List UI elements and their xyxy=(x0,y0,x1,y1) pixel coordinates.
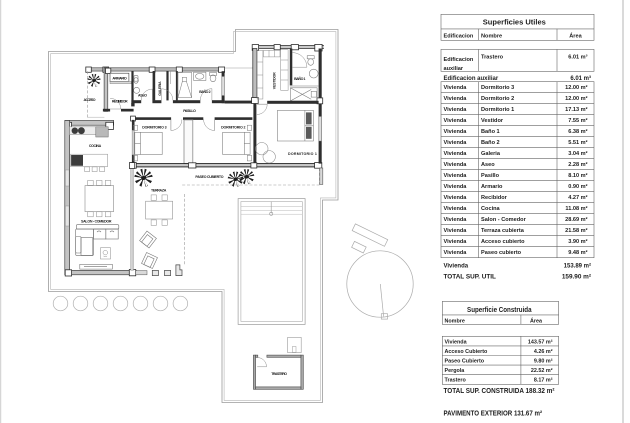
svg-text:12.00 m²: 12.00 m² xyxy=(565,84,588,91)
svg-text:Armario: Armario xyxy=(481,184,503,190)
svg-text:DORMITORIO 2: DORMITORIO 2 xyxy=(221,125,246,129)
svg-text:Vivienda: Vivienda xyxy=(444,263,469,269)
svg-text:3.04 m²: 3.04 m² xyxy=(568,150,587,157)
svg-text:6.38 m²: 6.38 m² xyxy=(568,128,587,135)
svg-text:5.51 m²: 5.51 m² xyxy=(568,139,587,146)
svg-text:VESTIDOR: VESTIDOR xyxy=(272,72,276,89)
svg-text:Vivienda: Vivienda xyxy=(444,118,468,124)
svg-text:auxiliar: auxiliar xyxy=(444,66,464,72)
svg-text:Vivienda: Vivienda xyxy=(444,217,468,223)
svg-text:Dormitorio 2: Dormitorio 2 xyxy=(481,96,514,102)
svg-text:143.57 m²: 143.57 m² xyxy=(528,339,553,345)
svg-text:Vivienda: Vivienda xyxy=(444,151,468,157)
svg-text:Edificacion: Edificacion xyxy=(444,57,474,63)
svg-text:COCINA: COCINA xyxy=(89,144,102,148)
svg-text:ACCESO: ACCESO xyxy=(84,98,96,102)
svg-text:22.52 m²: 22.52 m² xyxy=(531,368,553,374)
svg-text:Nombre: Nombre xyxy=(481,34,502,40)
svg-text:Galeria: Galeria xyxy=(481,151,501,157)
svg-text:6.01 m³: 6.01 m³ xyxy=(570,75,591,82)
svg-text:ARMARIO: ARMARIO xyxy=(112,76,127,80)
svg-text:Vivienda: Vivienda xyxy=(444,184,468,190)
svg-text:Acceso cubierto: Acceso cubierto xyxy=(481,239,525,245)
svg-text:Superficie Construida: Superficie Construida xyxy=(467,307,532,314)
svg-text:TOTAL SUP. CONSTRUIDA 188.32: TOTAL SUP. CONSTRUIDA 188.32 m² xyxy=(444,388,556,395)
svg-text:SALON - COMEDOR: SALON - COMEDOR xyxy=(81,220,112,224)
svg-text:Acceso Cubierto: Acceso Cubierto xyxy=(445,349,489,355)
svg-text:0.90 m²: 0.90 m² xyxy=(568,183,587,190)
svg-text:159.90 m²: 159.90 m² xyxy=(562,274,591,281)
svg-text:Vivienda: Vivienda xyxy=(444,162,468,168)
svg-text:Recibidor: Recibidor xyxy=(481,195,508,201)
svg-text:Cocina: Cocina xyxy=(481,206,501,212)
svg-text:BAÑO 1: BAÑO 1 xyxy=(294,76,306,81)
svg-text:Vivienda: Vivienda xyxy=(444,195,468,201)
svg-text:Vestidor: Vestidor xyxy=(481,118,504,124)
svg-text:9.80 m²: 9.80 m² xyxy=(534,359,553,365)
svg-text:Vivienda: Vivienda xyxy=(444,107,468,113)
svg-text:Vivienda: Vivienda xyxy=(444,140,468,146)
svg-text:11.08 m²: 11.08 m² xyxy=(565,205,587,212)
svg-text:Dormitorio 3: Dormitorio 3 xyxy=(481,85,514,91)
svg-text:4.27 m²: 4.27 m² xyxy=(568,194,587,201)
svg-text:Pasillo: Pasillo xyxy=(481,173,500,179)
svg-text:153.89 m²: 153.89 m² xyxy=(564,262,591,269)
svg-text:ASEO: ASEO xyxy=(138,93,147,97)
svg-text:Vivienda: Vivienda xyxy=(444,173,468,179)
svg-text:Salon - Comedor: Salon - Comedor xyxy=(481,217,527,223)
svg-text:Paseo Cubierto: Paseo Cubierto xyxy=(445,359,485,365)
svg-text:DORMITORIO 3: DORMITORIO 3 xyxy=(142,125,167,129)
svg-text:PASEO CUBIERTO: PASEO CUBIERTO xyxy=(195,175,223,179)
svg-text:RECIBIDOR: RECIBIDOR xyxy=(112,99,128,103)
svg-text:Superficies Utiles: Superficies Utiles xyxy=(483,19,546,26)
svg-text:12.00 m²: 12.00 m² xyxy=(565,95,588,102)
svg-text:PASILLO: PASILLO xyxy=(183,109,196,113)
svg-text:Vivienda: Vivienda xyxy=(444,250,468,256)
svg-text:Área: Área xyxy=(530,318,543,325)
svg-text:BAÑO 2: BAÑO 2 xyxy=(199,89,211,94)
svg-text:Nombre: Nombre xyxy=(445,319,465,325)
svg-text:Terraza cubierta: Terraza cubierta xyxy=(481,228,525,234)
svg-text:Vivienda: Vivienda xyxy=(444,96,468,102)
svg-text:DORMITORIO 1: DORMITORIO 1 xyxy=(288,152,317,156)
svg-text:Vivienda: Vivienda xyxy=(444,129,468,135)
svg-text:8.17 m²: 8.17 m² xyxy=(534,378,553,384)
svg-text:Dormitorio 1: Dormitorio 1 xyxy=(481,107,514,113)
svg-text:9.48 m²: 9.48 m² xyxy=(568,249,587,256)
svg-text:6.01 m³: 6.01 m³ xyxy=(568,54,587,61)
svg-text:21.58 m²: 21.58 m² xyxy=(565,227,588,234)
svg-text:17.13 m²: 17.13 m² xyxy=(565,106,588,113)
svg-text:Pergola: Pergola xyxy=(445,368,466,374)
svg-text:7.55 m²: 7.55 m² xyxy=(568,117,587,124)
svg-text:TOTAL SUP. UTIL: TOTAL SUP. UTIL xyxy=(444,274,497,281)
svg-text:Vivienda: Vivienda xyxy=(444,228,468,234)
svg-text:Paseo cubierto: Paseo cubierto xyxy=(481,250,522,256)
svg-text:Edificacion: Edificacion xyxy=(444,34,474,40)
svg-text:3.90 m²: 3.90 m² xyxy=(568,238,587,245)
svg-text:Vivienda: Vivienda xyxy=(445,339,468,345)
svg-text:Baño 1: Baño 1 xyxy=(481,129,500,135)
svg-text:PAVIMENTO EXTERIOR 131.67 m²: PAVIMENTO EXTERIOR 131.67 m² xyxy=(444,410,543,417)
svg-text:2.28 m²: 2.28 m² xyxy=(568,161,587,168)
svg-text:28.69 m²: 28.69 m² xyxy=(565,216,588,223)
svg-text:Trastero: Trastero xyxy=(481,55,504,61)
svg-text:Vivienda: Vivienda xyxy=(444,239,468,245)
svg-text:Edificacion auxiliar: Edificacion auxiliar xyxy=(444,76,499,82)
svg-text:Aseo: Aseo xyxy=(481,162,495,168)
svg-text:Baño 2: Baño 2 xyxy=(481,140,500,146)
svg-text:Vivienda: Vivienda xyxy=(444,85,468,91)
svg-text:TERRAZA: TERRAZA xyxy=(151,189,167,193)
svg-text:4.26 m²: 4.26 m² xyxy=(534,349,553,355)
svg-text:Vivienda: Vivienda xyxy=(444,206,468,212)
svg-text:Área: Área xyxy=(569,33,582,40)
svg-text:Trastero: Trastero xyxy=(445,378,467,384)
svg-text:8.10 m²: 8.10 m² xyxy=(568,172,587,179)
svg-text:TRASTERO: TRASTERO xyxy=(271,372,287,376)
